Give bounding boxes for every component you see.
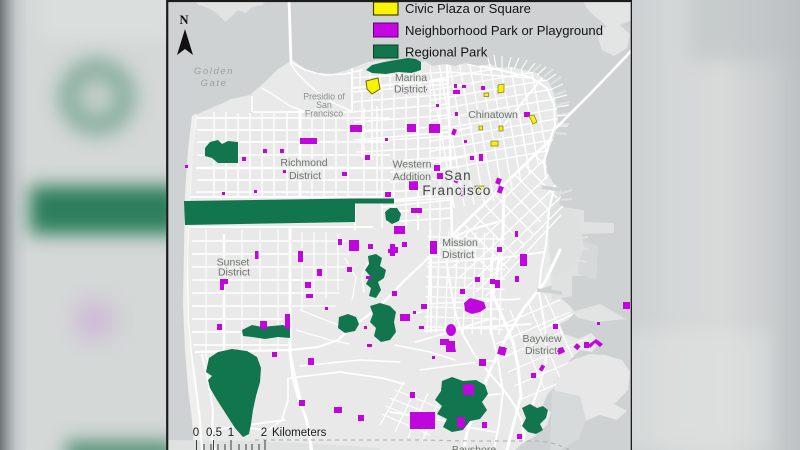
svg-text:2: 2 — [261, 427, 267, 439]
svg-text:Richmond: Richmond — [280, 157, 327, 169]
svg-text:0: 0 — [193, 427, 199, 439]
svg-text:Bayview: Bayview — [522, 333, 562, 345]
svg-text:Kilometers: Kilometers — [272, 427, 327, 439]
svg-text:District: District — [394, 84, 426, 96]
svg-text:Mission: Mission — [442, 237, 478, 249]
svg-text:Neighborhood Park or Playgroun: Neighborhood Park or Playground — [405, 23, 603, 38]
svg-text:Gate: Gate — [201, 78, 228, 89]
svg-text:0.5: 0.5 — [206, 427, 222, 439]
svg-text:Francisco: Francisco — [422, 183, 491, 198]
svg-text:Francisco: Francisco — [305, 109, 343, 119]
svg-text:District: District — [525, 345, 557, 357]
svg-text:N: N — [179, 13, 188, 27]
svg-text:Marina: Marina — [395, 72, 427, 84]
svg-text:Chinatown: Chinatown — [468, 109, 518, 121]
svg-text:Addition: Addition — [393, 171, 431, 183]
svg-text:District: District — [442, 249, 474, 261]
svg-text:San: San — [444, 168, 472, 183]
svg-text:Western: Western — [393, 159, 432, 171]
svg-text:1: 1 — [228, 427, 234, 439]
svg-text:Bayshore: Bayshore — [452, 444, 497, 450]
svg-text:Regional Park: Regional Park — [405, 45, 488, 60]
svg-text:District: District — [218, 267, 250, 279]
svg-text:Civic Plaza or Square: Civic Plaza or Square — [405, 1, 531, 16]
svg-text:Golden: Golden — [194, 66, 234, 77]
svg-text:District: District — [289, 170, 321, 182]
